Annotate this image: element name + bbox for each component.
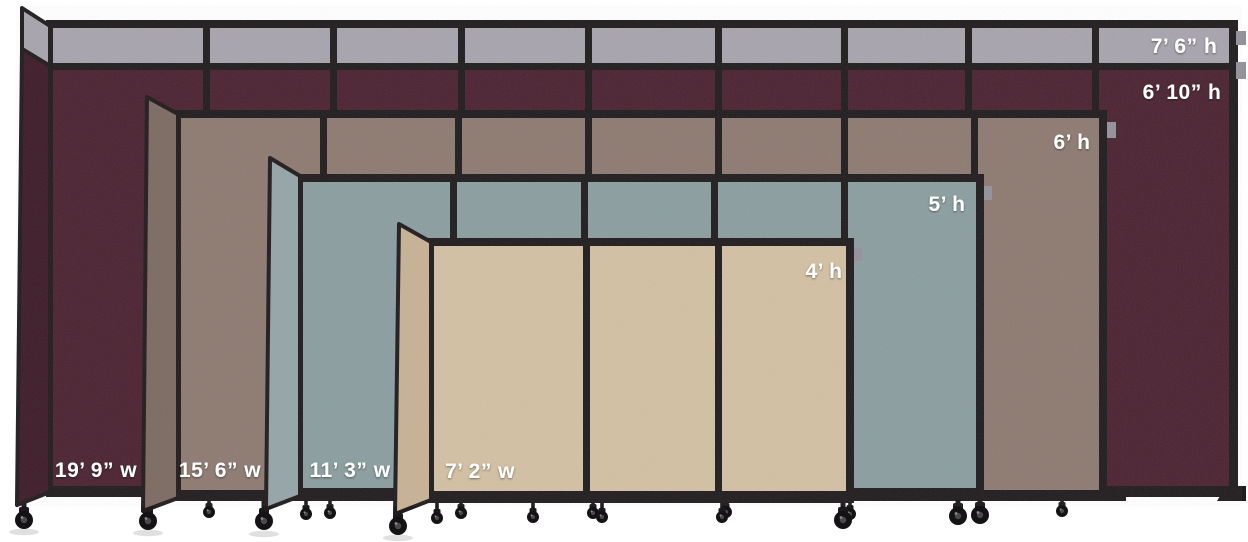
height-label-4ft: 4’ h: [805, 260, 842, 283]
width-label-11ft3: 11’ 3” w: [309, 459, 390, 482]
divider-diagram: 7’ 6” h 6’ 10” h 6’ h 5’ h 4’ h 19’ 9” w…: [0, 0, 1248, 542]
width-label-19ft9: 19’ 9” w: [55, 459, 137, 482]
height-label-7ft6: 7’ 6” h: [1151, 35, 1218, 58]
fabric-texture-overlay: [16, 6, 1242, 506]
height-label-6ft: 6’ h: [1053, 131, 1090, 154]
width-label-7ft2: 7’ 2” w: [445, 460, 515, 483]
room-divider-size-comparison: 7’ 6” h 6’ 10” h 6’ h 5’ h 4’ h 19’ 9” w…: [0, 0, 1248, 542]
width-label-15ft6: 15’ 6” w: [179, 459, 261, 482]
height-label-5ft: 5’ h: [928, 193, 965, 216]
height-label-6ft10: 6’ 10” h: [1143, 81, 1222, 104]
